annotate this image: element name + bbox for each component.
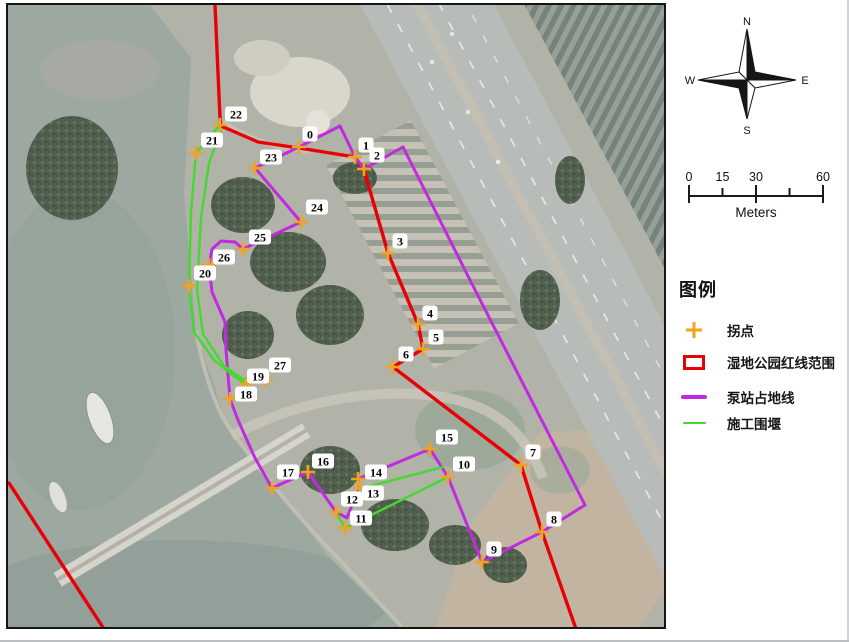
svg-text:22: 22 [230, 107, 242, 121]
point-label-2: 2 [370, 148, 385, 163]
svg-text:23: 23 [265, 150, 277, 164]
point-label-5: 5 [429, 330, 444, 345]
svg-text:6: 6 [403, 347, 409, 361]
svg-text:17: 17 [282, 465, 294, 479]
legend-label-wetland-redline: 湿地公园红线范围 [727, 352, 835, 372]
satellite-imagery [8, 5, 664, 627]
svg-text:24: 24 [311, 200, 323, 214]
point-label-23: 23 [260, 150, 282, 165]
point-label-18: 18 [235, 387, 257, 402]
map-canvas[interactable]: 0123456789101112131415161718192021222324… [6, 3, 666, 629]
legend-item-cofferdam: 施工围堰 [677, 411, 781, 435]
legend-title: 图例 [679, 276, 717, 302]
scale-unit-label: Meters [735, 205, 777, 220]
svg-text:5: 5 [433, 330, 439, 344]
svg-text:10: 10 [458, 457, 470, 471]
svg-text:16: 16 [317, 454, 329, 468]
svg-text:11: 11 [355, 511, 366, 525]
svg-text:4: 4 [427, 306, 433, 320]
legend-label-cofferdam: 施工围堰 [727, 413, 781, 433]
point-label-4: 4 [423, 306, 438, 321]
point-label-16: 16 [312, 454, 334, 469]
svg-text:20: 20 [199, 266, 211, 280]
compass-s-label: S [743, 125, 750, 137]
map-figure: 0123456789101112131415161718192021222324… [0, 0, 849, 642]
point-label-22: 22 [225, 107, 247, 122]
svg-text:19: 19 [252, 369, 264, 383]
point-label-14: 14 [365, 465, 387, 480]
point-label-17: 17 [277, 465, 299, 480]
legend-label-turning-point: 拐点 [727, 320, 754, 340]
legend-item-wetland-redline: 湿地公园红线范围 [677, 350, 835, 374]
svg-text:3: 3 [397, 234, 403, 248]
map-svg: 0123456789101112131415161718192021222324… [8, 5, 664, 627]
scale-tick-0: 0 [686, 170, 693, 184]
scale-tick-60: 60 [816, 170, 830, 184]
point-label-10: 10 [453, 457, 475, 472]
scale-bar: 0 15 30 60 Meters [675, 170, 845, 222]
svg-text:21: 21 [206, 133, 218, 147]
svg-text:13: 13 [367, 486, 379, 500]
svg-text:7: 7 [530, 445, 536, 459]
point-label-8: 8 [547, 512, 562, 527]
point-label-26: 26 [213, 250, 235, 265]
point-label-11: 11 [350, 511, 372, 526]
point-label-7: 7 [526, 445, 541, 460]
point-label-21: 21 [201, 133, 223, 148]
legend-label-pump-station-line: 泵站占地线 [727, 387, 795, 407]
svg-text:0: 0 [307, 127, 313, 141]
north-arrow-icon: N S W E [683, 14, 819, 140]
svg-text:15: 15 [441, 430, 453, 444]
point-label-3: 3 [393, 234, 408, 249]
point-label-27: 27 [269, 358, 291, 373]
point-label-9: 9 [487, 542, 502, 557]
svg-text:12: 12 [346, 492, 358, 506]
svg-text:2: 2 [374, 148, 380, 162]
svg-text:1: 1 [363, 138, 369, 152]
svg-text:25: 25 [254, 230, 266, 244]
redline-swatch-icon [677, 355, 711, 370]
compass-e-label: E [801, 75, 808, 87]
point-label-15: 15 [436, 430, 458, 445]
point-label-13: 13 [362, 486, 384, 501]
point-label-0: 0 [303, 127, 318, 142]
point-label-6: 6 [399, 347, 414, 362]
point-label-12: 12 [341, 492, 363, 507]
svg-text:9: 9 [491, 542, 497, 556]
point-label-19: 19 [247, 369, 269, 384]
turning-point-icon [677, 320, 711, 340]
scale-tick-30: 30 [749, 170, 763, 184]
compass-n-label: N [743, 16, 751, 28]
point-label-24: 24 [306, 200, 328, 215]
svg-text:14: 14 [370, 465, 382, 479]
svg-text:8: 8 [551, 512, 557, 526]
svg-text:27: 27 [274, 358, 286, 372]
point-label-20: 20 [194, 266, 216, 281]
svg-text:26: 26 [218, 250, 230, 264]
point-label-25: 25 [249, 230, 271, 245]
legend-item-turning-point: 拐点 [677, 318, 754, 342]
map-margin-panel: N S W E 0 15 30 60 Meters 图例 [669, 0, 847, 638]
pump-line-swatch-icon [677, 395, 711, 398]
svg-text:18: 18 [240, 387, 252, 401]
cofferdam-swatch-icon [677, 422, 711, 425]
compass-w-label: W [685, 75, 696, 87]
legend-item-pump-station-line: 泵站占地线 [677, 385, 795, 409]
scale-tick-15: 15 [716, 170, 730, 184]
